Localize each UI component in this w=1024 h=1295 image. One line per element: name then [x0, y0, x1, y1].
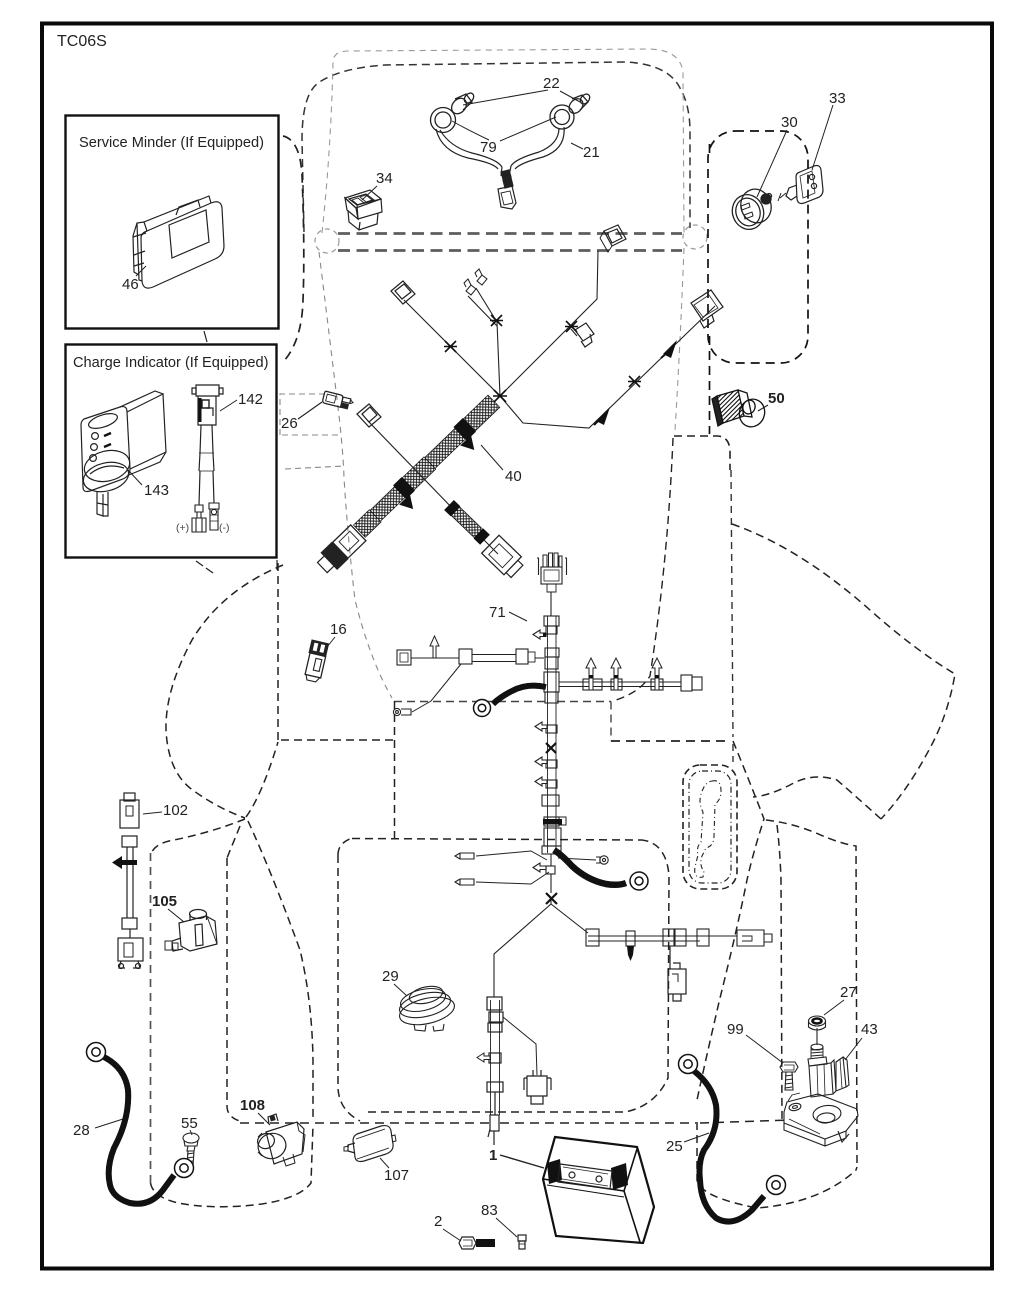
svg-text:29: 29	[382, 968, 399, 985]
svg-text:1: 1	[489, 1147, 497, 1164]
svg-text:55: 55	[181, 1115, 198, 1132]
svg-text:28: 28	[73, 1122, 90, 1139]
svg-text:142: 142	[238, 391, 263, 408]
svg-text:27: 27	[840, 984, 857, 1001]
svg-text:21: 21	[583, 144, 600, 161]
svg-text:107: 107	[384, 1167, 409, 1184]
svg-text:71: 71	[489, 604, 506, 621]
svg-text:2: 2	[434, 1213, 442, 1230]
svg-text:Charge Indicator (If Equipped): Charge Indicator (If Equipped)	[73, 355, 269, 371]
svg-text:30: 30	[781, 114, 798, 131]
svg-text:46: 46	[122, 276, 139, 293]
svg-text:26: 26	[281, 415, 298, 432]
svg-text:99: 99	[727, 1021, 744, 1038]
svg-text:33: 33	[829, 90, 846, 107]
svg-text:(+): (+)	[176, 522, 189, 534]
svg-text:16: 16	[330, 621, 347, 638]
svg-text:TC06S: TC06S	[57, 33, 107, 50]
svg-text:(-): (-)	[219, 522, 230, 534]
svg-text:43: 43	[861, 1021, 878, 1038]
svg-text:79: 79	[480, 139, 497, 156]
svg-text:Service Minder (If Equipped): Service Minder (If Equipped)	[79, 135, 264, 151]
svg-text:34: 34	[376, 170, 393, 187]
svg-text:25: 25	[666, 1138, 683, 1155]
svg-text:50: 50	[768, 390, 785, 407]
svg-text:108: 108	[240, 1097, 265, 1114]
svg-text:105: 105	[152, 893, 177, 910]
svg-text:40: 40	[505, 468, 522, 485]
svg-text:143: 143	[144, 482, 169, 499]
svg-text:102: 102	[163, 802, 188, 819]
svg-text:83: 83	[481, 1202, 498, 1219]
svg-text:22: 22	[543, 75, 560, 92]
